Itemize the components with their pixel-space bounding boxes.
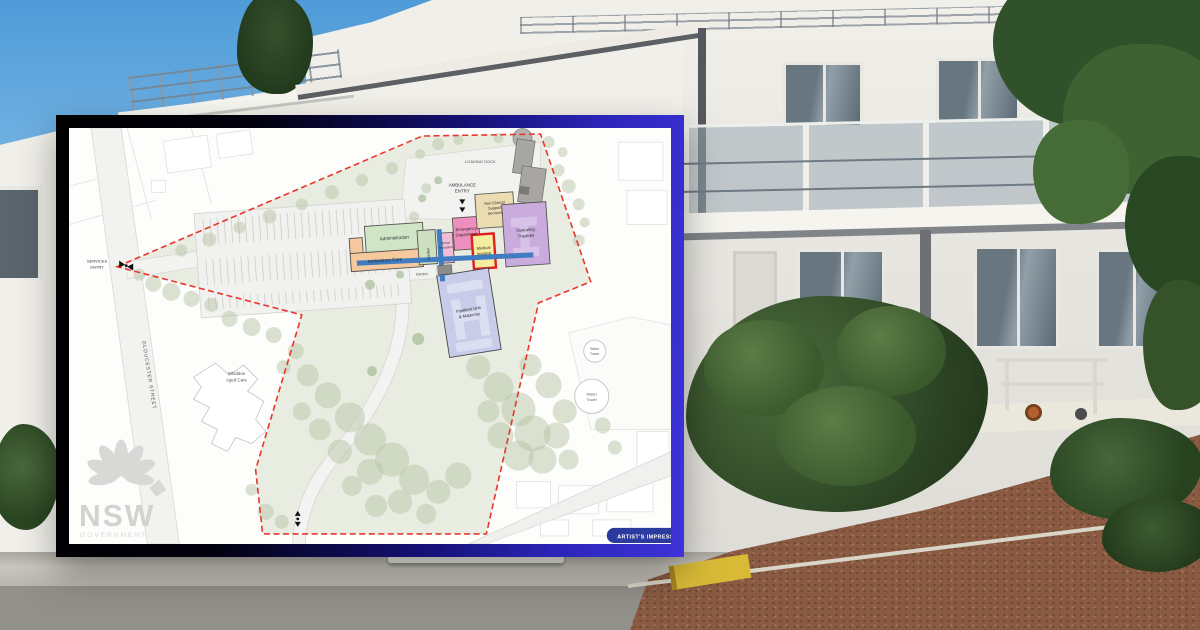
site-plan-svg: Inpatient Unit & Maternity Administratio…	[69, 128, 671, 544]
services-entry-label: ENTRY	[90, 265, 104, 270]
plan-frame: Inpatient Unit & Maternity Administratio…	[56, 115, 684, 557]
nsw-logo-text: NSW	[79, 500, 155, 533]
water-tower-label: Tower	[586, 397, 597, 402]
artists-impression-label: ARTIST'S IMPRESSION	[617, 534, 671, 540]
ambulance-entry-label: AMBULANCE	[449, 182, 476, 187]
entry-canopy	[438, 265, 453, 275]
shrub	[1102, 498, 1200, 572]
artists-impression-badge: ARTIST'S IMPRESSION	[607, 528, 671, 543]
water-tower-label: Water	[586, 391, 597, 396]
services-entry-label: SERVICES	[87, 259, 107, 264]
imaging-label: Imaging	[477, 250, 492, 256]
aged-care-label: Whiddon	[228, 371, 246, 376]
left-wing-window	[0, 186, 42, 278]
promo-card: Inpatient Unit & Maternity Administratio…	[0, 0, 1200, 630]
overhanging-tree	[975, 0, 1200, 460]
water-tower-label: Water	[590, 347, 600, 351]
building-entry-label: ENTRY	[416, 273, 429, 277]
site-plan: Inpatient Unit & Maternity Administratio…	[69, 128, 671, 544]
aged-care-label: Aged Care	[226, 378, 248, 383]
water-tower-label: Tower	[590, 352, 600, 356]
loading-dock-label: LOADING DOCK	[465, 159, 496, 164]
upper-window	[783, 62, 863, 128]
ambulance-entry-label: ENTRY	[455, 188, 470, 193]
conifer-tree	[237, 0, 313, 94]
government-logo-text: GOVERNMENT	[80, 532, 147, 539]
